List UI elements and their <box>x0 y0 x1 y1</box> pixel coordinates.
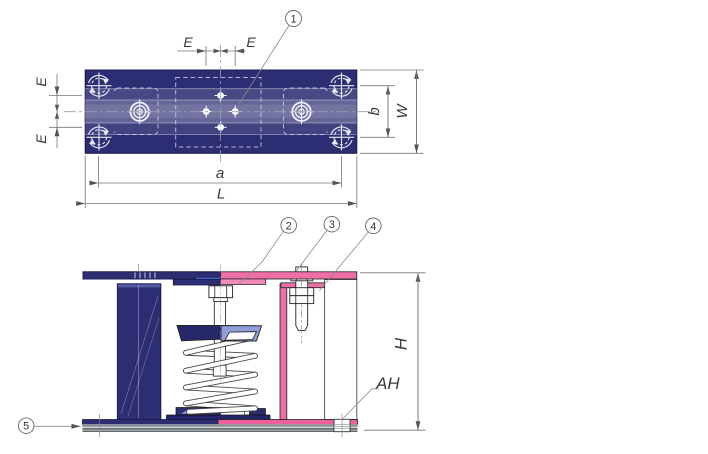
svg-text:L: L <box>217 186 225 203</box>
svg-text:E: E <box>33 77 49 87</box>
svg-text:E: E <box>246 34 256 50</box>
svg-text:1: 1 <box>290 14 296 26</box>
svg-text:E: E <box>33 134 49 144</box>
svg-text:2: 2 <box>286 220 292 232</box>
svg-text:3: 3 <box>329 219 335 231</box>
svg-text:E: E <box>183 34 193 50</box>
svg-text:a: a <box>216 165 224 182</box>
svg-text:b: b <box>366 107 383 115</box>
svg-text:4: 4 <box>370 221 376 233</box>
svg-text:AH: AH <box>375 374 400 393</box>
svg-text:W: W <box>394 103 411 119</box>
svg-text:H: H <box>392 337 411 350</box>
svg-text:5: 5 <box>23 421 29 433</box>
